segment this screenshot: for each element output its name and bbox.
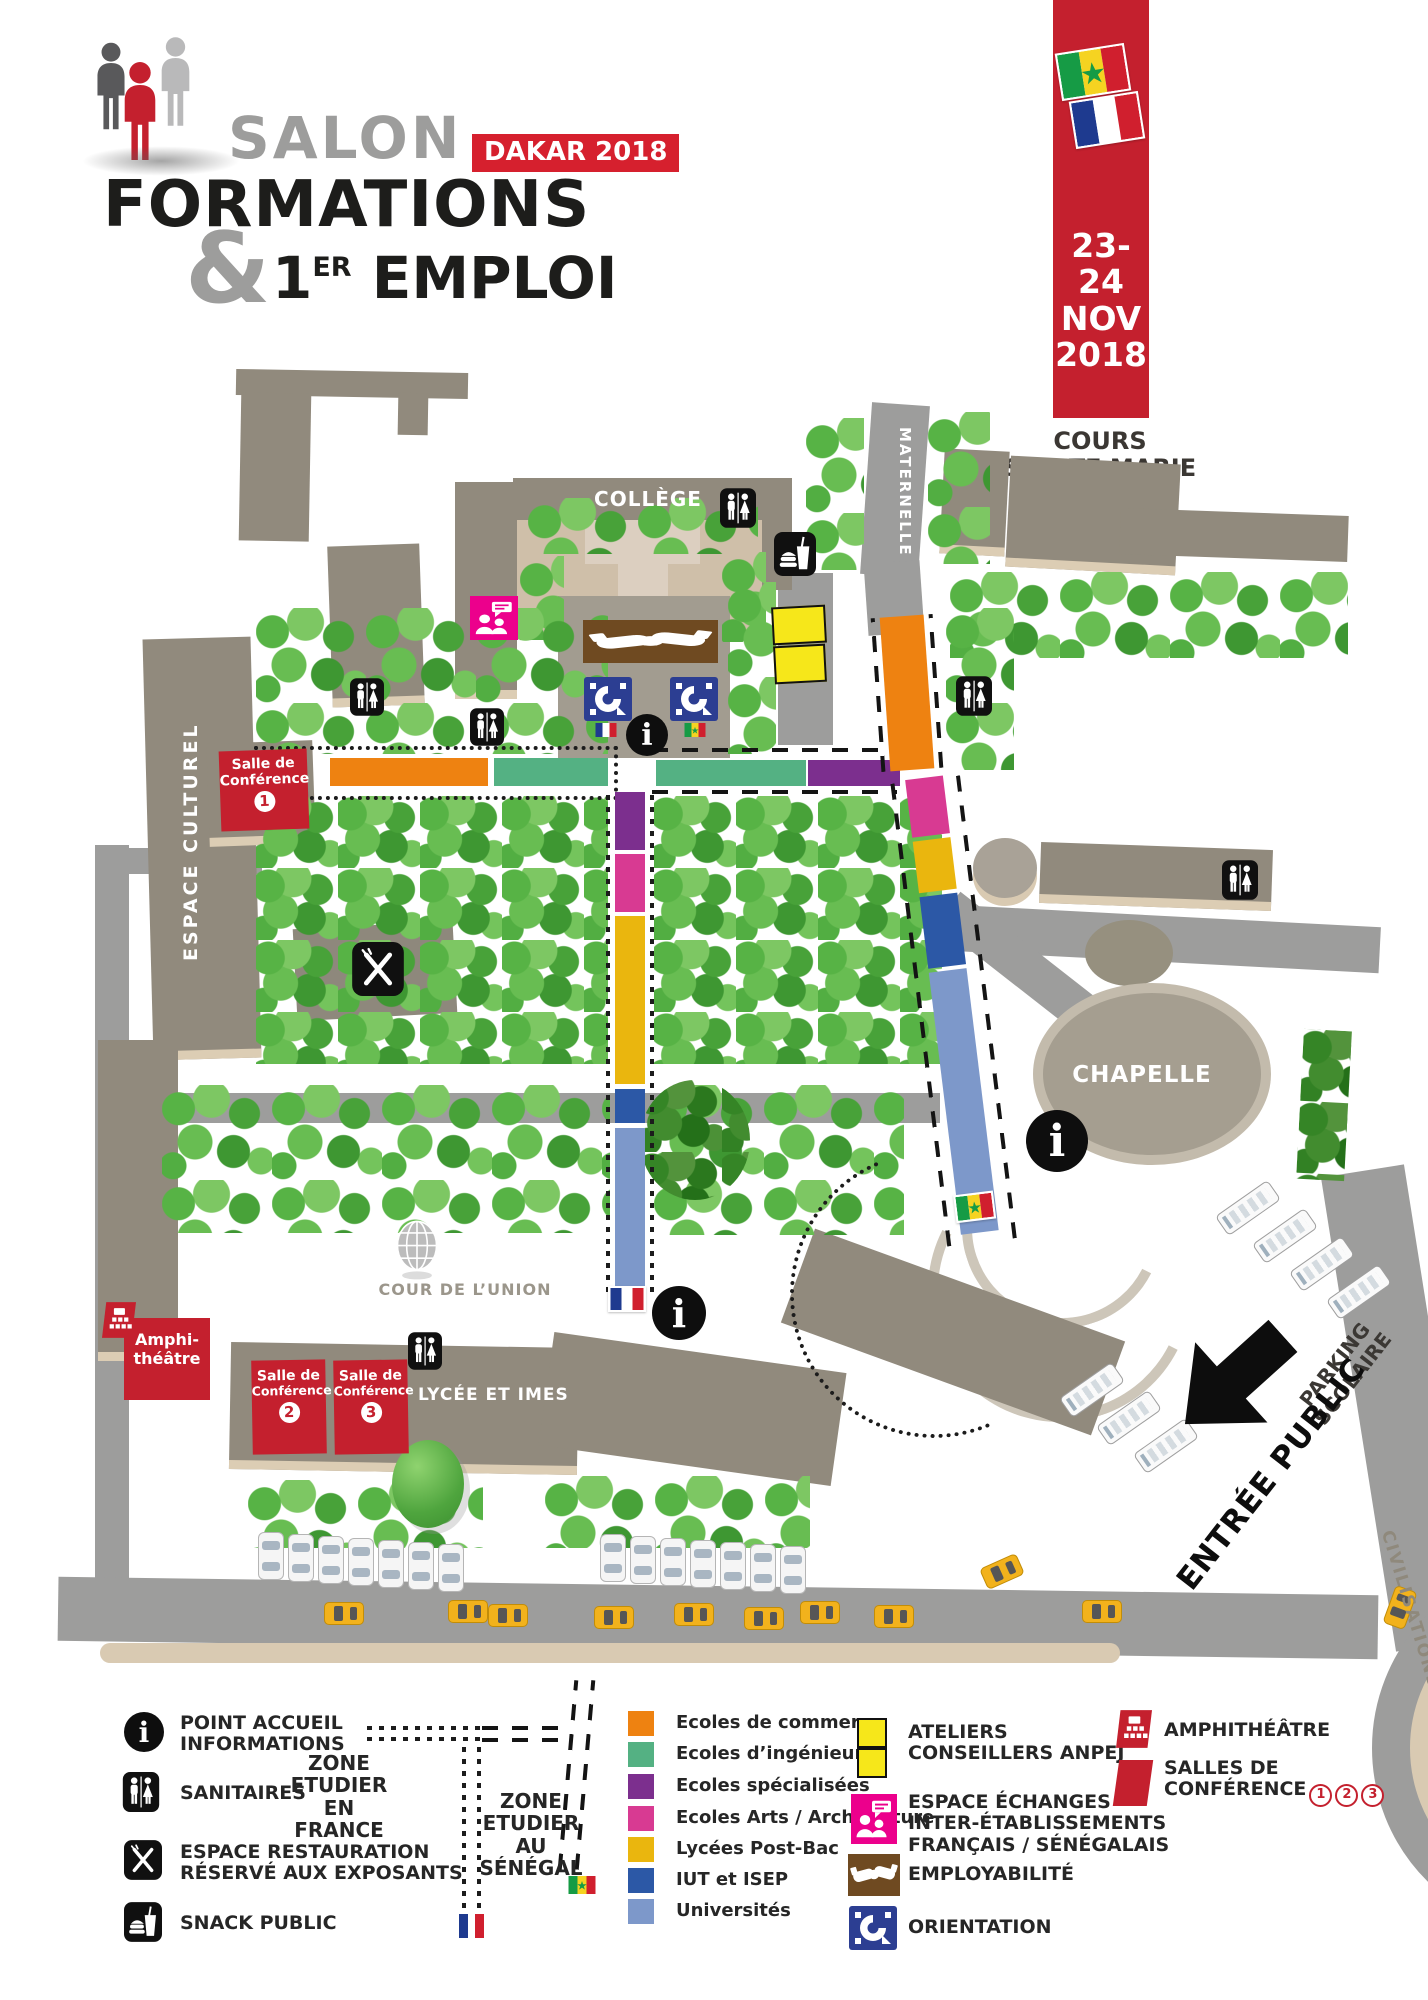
stand-ingenieurs xyxy=(656,760,806,786)
date-line3: 2018 xyxy=(1051,337,1151,373)
category-label: Universités xyxy=(676,1901,791,1921)
orientation-box xyxy=(670,677,718,721)
date-line1: 23-24 xyxy=(1051,228,1151,301)
zone-senegal-path xyxy=(482,1738,562,1742)
ateliers-label: ATELIERS CONSEILLERS ANPEJ xyxy=(908,1722,1124,1765)
france-flag-icon xyxy=(608,1286,646,1312)
legend-line: ATELIERS xyxy=(908,1722,1124,1743)
taxi xyxy=(324,1602,364,1625)
category-swatch xyxy=(628,1774,654,1799)
amphitheatre-label: AMPHITHÉÂTRE xyxy=(1164,1720,1330,1741)
info-icon xyxy=(124,1712,164,1752)
atelier-anpej-box xyxy=(773,644,827,685)
zone-senegal-line xyxy=(652,748,894,752)
taxi xyxy=(488,1604,528,1627)
atelier-anpej-icon xyxy=(857,1718,887,1748)
toilet-icon xyxy=(956,676,992,716)
big-dark-tree xyxy=(640,1080,750,1200)
legend-line: CONSEILLERS ANPEJ xyxy=(908,1743,1124,1764)
salle-conference-1: Salle de Conférence 1 xyxy=(219,748,310,831)
stand-lycees xyxy=(913,837,957,893)
employabilite-box xyxy=(583,620,718,663)
info-point-icon xyxy=(626,714,668,756)
car xyxy=(438,1544,464,1592)
france-banner-icon xyxy=(456,1914,468,1938)
category-swatch xyxy=(628,1711,654,1736)
legend-info-label: POINT ACCUEIL INFORMATIONS xyxy=(180,1713,345,1756)
taxi xyxy=(744,1607,784,1630)
category-swatch xyxy=(628,1899,654,1924)
bus xyxy=(1252,1208,1318,1264)
title-badge: DAKAR 2018 xyxy=(472,134,679,172)
label-lycee: LYCÉE ET IMES xyxy=(418,1385,588,1405)
label-maternelle: MATERNELLE xyxy=(874,414,914,570)
legend-line: INTER-ÉTABLISSEMENTS xyxy=(908,1813,1169,1834)
event-map-poster: SALON DAKAR 2018 FORMATIONS & 1ER EMPLOI… xyxy=(0,0,1428,2000)
salle-number: 1 xyxy=(254,791,276,813)
toilet-icon xyxy=(122,1772,160,1812)
legend-line: SÉNÉGAL xyxy=(478,1857,584,1879)
atelier-anpej-icon xyxy=(857,1748,887,1778)
stand-iut xyxy=(615,1089,645,1123)
stand-universites xyxy=(615,1128,645,1286)
category-label: Ecoles spécialisées xyxy=(676,1776,870,1796)
zone-france-path xyxy=(462,1742,466,1920)
amphitheatre-icon xyxy=(1116,1708,1152,1750)
tree-canopy xyxy=(256,608,608,754)
car xyxy=(750,1544,776,1592)
label-cour-union: COUR DE L’UNION xyxy=(370,1280,560,1299)
legend-line: AMPHITHÉÂTRE xyxy=(1164,1720,1330,1741)
car xyxy=(630,1536,656,1584)
building-lycee-east xyxy=(539,1332,847,1486)
taxi xyxy=(874,1605,914,1628)
toilet-icon xyxy=(720,488,756,528)
stand-arts xyxy=(905,776,950,838)
zone-senegal-path xyxy=(482,1726,568,1730)
info-point-icon xyxy=(652,1286,706,1340)
taxi xyxy=(448,1600,488,1623)
toilet-icon xyxy=(408,1332,442,1370)
france-banner-icon xyxy=(472,1914,484,1938)
category-swatch xyxy=(628,1806,654,1831)
tree-canopy xyxy=(162,1085,610,1233)
car xyxy=(660,1538,686,1586)
france-flag-icon xyxy=(592,723,620,737)
building-topleft-wing xyxy=(239,392,312,541)
legend-line: POINT ACCUEIL xyxy=(180,1713,345,1734)
salle-ring-number: 2 xyxy=(1335,1784,1358,1807)
car xyxy=(348,1538,374,1586)
stand-specialisees xyxy=(615,792,645,850)
snack-icon xyxy=(774,532,816,576)
legend-line: ORIENTATION xyxy=(908,1917,1052,1938)
zone-france-label: ZONE ETUDIER EN FRANCE xyxy=(284,1752,394,1842)
zone-france-path xyxy=(367,1726,481,1730)
orange-stand-track xyxy=(871,614,944,772)
legend-line: FRANCE xyxy=(284,1819,394,1841)
stand-iut xyxy=(920,893,966,969)
toilet-icon xyxy=(470,708,504,746)
central-alley xyxy=(606,792,654,1292)
taxi xyxy=(800,1601,840,1624)
stand-commerce xyxy=(880,615,935,772)
zone-senegal-line xyxy=(652,790,897,794)
label-college: COLLÈGE xyxy=(580,487,716,511)
orientation-label: ORIENTATION xyxy=(908,1917,1052,1938)
taxi xyxy=(1082,1600,1122,1623)
event-dates: 23-24 NOV 2018 xyxy=(1051,228,1151,373)
car xyxy=(378,1540,404,1588)
senegal-flag-icon xyxy=(681,723,709,737)
legend-line: EMPLOYABILITÉ xyxy=(908,1864,1074,1885)
salle-number: 3 xyxy=(360,1402,381,1423)
espace-echanges-icon xyxy=(851,1794,897,1844)
amphitheatre-icon xyxy=(102,1302,136,1338)
taxi xyxy=(674,1603,714,1626)
logo-people xyxy=(86,28,236,173)
category-label: IUT et ISEP xyxy=(676,1870,788,1890)
label-chapelle: CHAPELLE xyxy=(1058,1062,1226,1088)
emploi-er: ER xyxy=(312,252,351,283)
legend-line: SALLES DE xyxy=(1164,1758,1384,1779)
salle-conference-3: Salle de Conférence 3 xyxy=(333,1359,409,1454)
taxi xyxy=(979,1553,1025,1590)
chapelle-annex-oval xyxy=(1085,920,1173,986)
salle-ring-number: 1 xyxy=(1309,1784,1332,1807)
car xyxy=(258,1532,284,1580)
stand-arts xyxy=(615,854,645,912)
alley-dotted-right xyxy=(650,792,654,1292)
title-ampersand: & xyxy=(185,212,270,326)
date-line2: NOV xyxy=(1051,301,1151,337)
emploi-one: 1 xyxy=(272,244,312,312)
salles-conference-label: SALLES DE CONFÉRENCE123 xyxy=(1164,1758,1384,1807)
globe-icon xyxy=(394,1218,440,1280)
planter-circle xyxy=(973,838,1037,898)
category-label: Lycées Post-Bac xyxy=(676,1839,839,1859)
salle-line2: Conférence xyxy=(334,1383,408,1399)
salles-line2-wrap: CONFÉRENCE123 xyxy=(1164,1779,1384,1807)
legend-line: ESPACE RESTAURATION xyxy=(180,1842,463,1863)
atelier-anpej-box xyxy=(771,605,827,646)
category-label: Ecoles de commerce xyxy=(676,1713,883,1733)
amphi-line2: théâtre xyxy=(124,1349,210,1368)
employabilite-icon xyxy=(848,1854,900,1896)
car xyxy=(690,1540,716,1588)
tree-canopy xyxy=(728,582,776,754)
amphitheatre-box: Amphi- théâtre xyxy=(124,1318,210,1400)
toilet-icon xyxy=(350,678,384,716)
legend-line: ZONE xyxy=(284,1752,394,1774)
info-point-icon xyxy=(1026,1110,1088,1172)
title-formations: FORMATIONS xyxy=(103,168,590,242)
restaurant-icon xyxy=(124,1840,162,1880)
category-swatch xyxy=(628,1868,654,1893)
toilet-icon xyxy=(1222,860,1258,900)
label-espace-culturel: ESPACE CULTUREL xyxy=(180,672,222,1012)
legend-line: EN xyxy=(284,1797,394,1819)
espace-echanges-icon xyxy=(470,596,518,640)
title-salon: SALON xyxy=(228,104,462,172)
legend-line: ETUDIER xyxy=(478,1812,584,1834)
category-swatch xyxy=(628,1742,654,1767)
car xyxy=(318,1536,344,1584)
snack-icon xyxy=(124,1902,162,1942)
park-canopy xyxy=(256,796,608,1064)
title-emploi: 1ER EMPLOI xyxy=(272,244,617,312)
emploi-word: EMPLOI xyxy=(372,244,618,312)
venue-line1: COURS xyxy=(1000,428,1200,455)
legend-restauration-label: ESPACE RESTAURATION RÉSERVÉ AUX EXPOSANT… xyxy=(180,1842,463,1885)
alley-dotted-left xyxy=(606,792,610,1292)
orientation-icon xyxy=(848,1906,898,1950)
legend-line: ZONE xyxy=(478,1790,584,1812)
car xyxy=(600,1534,626,1582)
category-swatch xyxy=(628,1837,654,1862)
tree-canopy xyxy=(928,412,990,564)
zone-france-path xyxy=(367,1737,481,1741)
sidewalk-bottom xyxy=(100,1643,1120,1663)
legend-line: SNACK PUBLIC xyxy=(180,1913,337,1934)
zone-senegal-label: ZONE ETUDIER AU SÉNÉGAL xyxy=(478,1790,584,1880)
legend-line: ETUDIER xyxy=(284,1774,394,1796)
building-topleft-stub xyxy=(398,393,429,436)
amphi-line1: Amphi- xyxy=(124,1330,210,1349)
car xyxy=(408,1542,434,1590)
car xyxy=(720,1542,746,1590)
taxi xyxy=(594,1606,634,1629)
salle-line2: Conférence xyxy=(252,1383,326,1399)
salle-number: 2 xyxy=(278,1402,299,1423)
legend-line: CONFÉRENCE xyxy=(1164,1778,1306,1800)
stand-ingenieurs xyxy=(494,758,608,786)
salles-conference-icon xyxy=(1113,1760,1153,1806)
legend-line: AU xyxy=(478,1835,584,1857)
salle-ring-number: 3 xyxy=(1361,1784,1384,1807)
orientation-box xyxy=(583,677,633,721)
legend-line: FRANÇAIS / SÉNÉGALAIS xyxy=(908,1835,1169,1856)
category-label: Ecoles d’ingénieurs xyxy=(676,1744,874,1764)
salle-line2: Conférence xyxy=(219,771,308,790)
car xyxy=(288,1534,314,1582)
car xyxy=(780,1546,806,1594)
hedge-chapelle xyxy=(1296,1029,1352,1181)
stand-lycees xyxy=(615,916,645,1084)
salle-conference-2: Salle de Conférence 2 xyxy=(251,1359,327,1454)
legend-line: RÉSERVÉ AUX EXPOSANTS xyxy=(180,1863,463,1884)
bus xyxy=(1215,1180,1281,1236)
stand-commerce xyxy=(330,758,488,786)
restaurant-icon xyxy=(352,942,404,996)
employabilite-label: EMPLOYABILITÉ xyxy=(908,1864,1074,1885)
building-topright-bar xyxy=(1119,508,1348,562)
legend-snack-label: SNACK PUBLIC xyxy=(180,1913,337,1934)
